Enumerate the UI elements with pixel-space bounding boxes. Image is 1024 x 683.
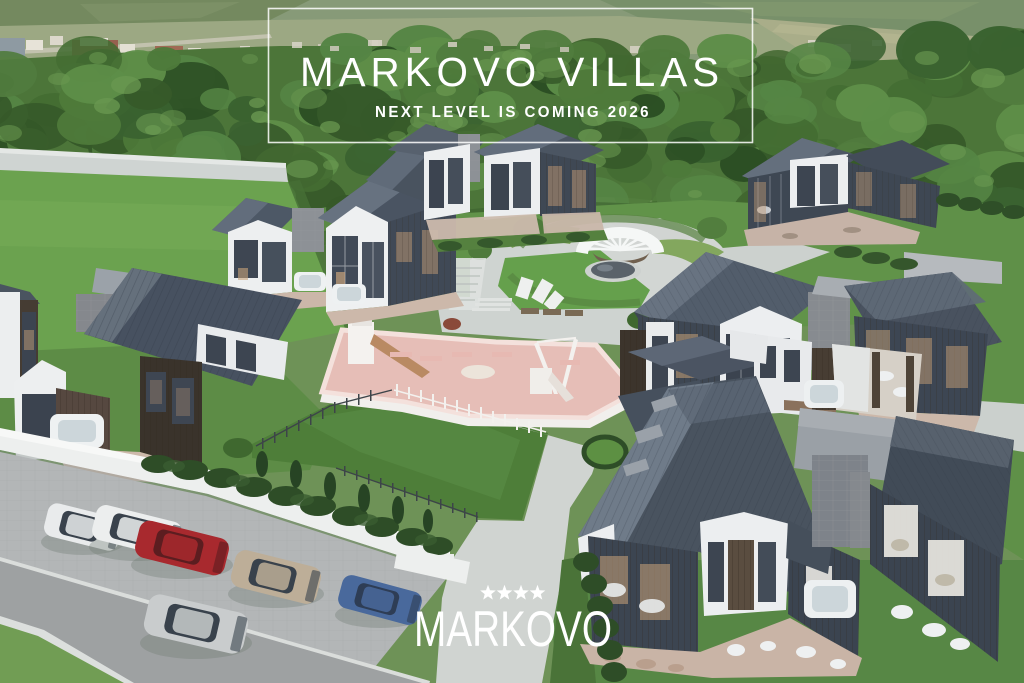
svg-text:NEXT LEVEL IS COMING 2026: NEXT LEVEL IS COMING 2026	[375, 104, 651, 121]
svg-text:MARKOVO VILLAS: MARKOVO VILLAS	[300, 49, 724, 95]
svg-text:MARKOVO: MARKOVO	[414, 601, 612, 657]
